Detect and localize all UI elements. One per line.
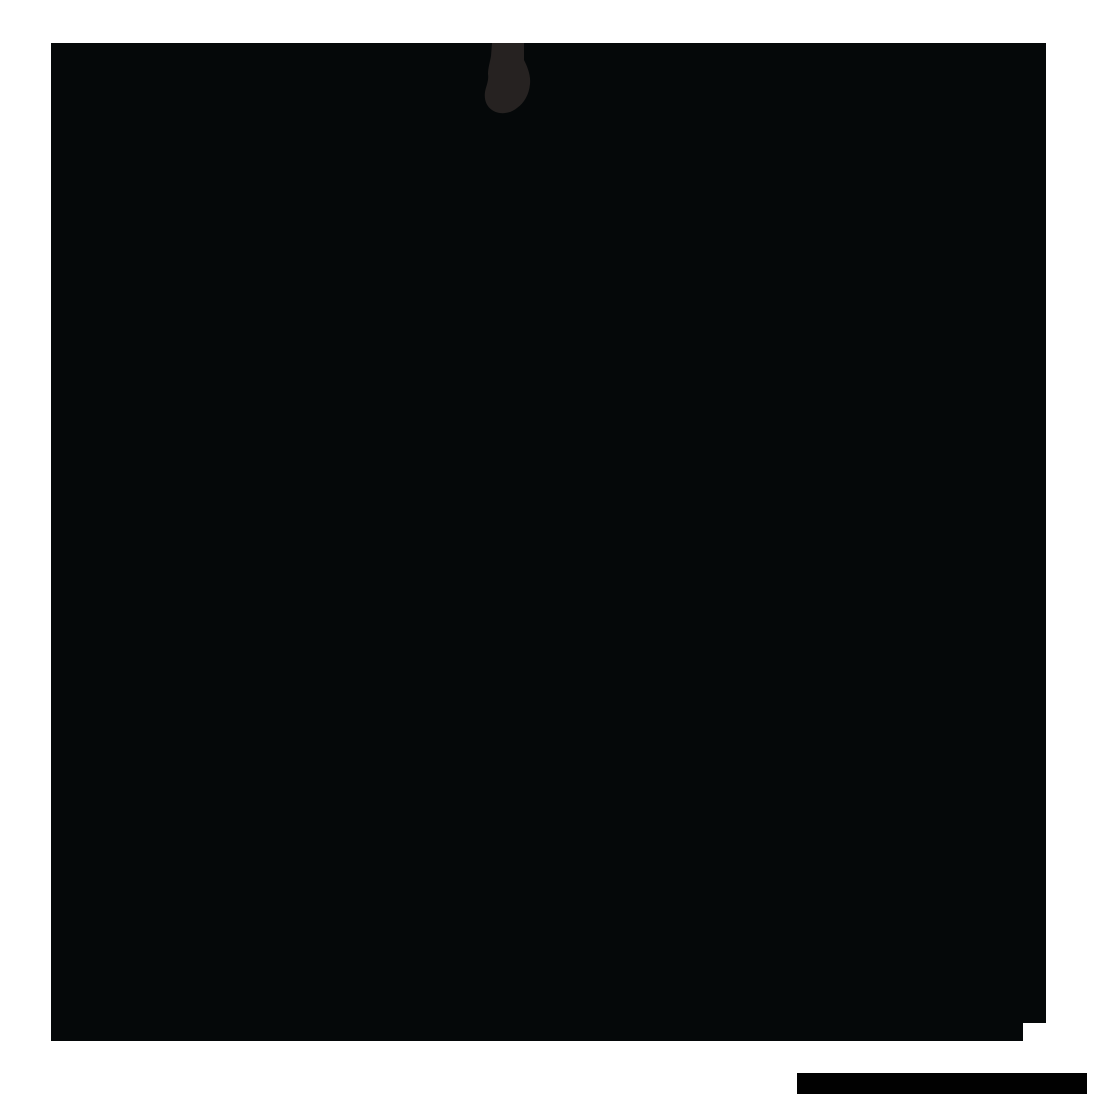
corner-notch	[1023, 1023, 1046, 1041]
scene-canvas	[0, 0, 1100, 1100]
footer-bar	[797, 1073, 1087, 1094]
dark-photo	[51, 43, 1046, 1041]
page	[0, 0, 1100, 1100]
